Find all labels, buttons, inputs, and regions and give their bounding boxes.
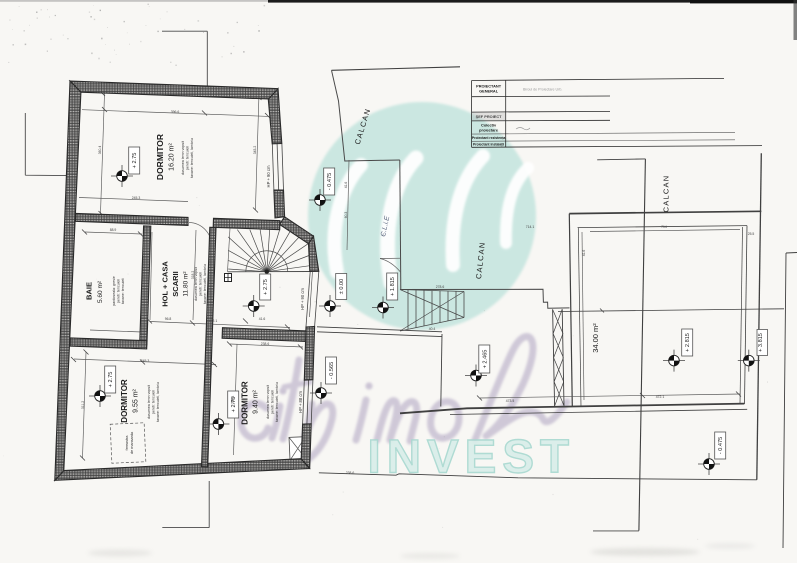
svg-text:396.6: 396.6 bbox=[171, 110, 180, 114]
svg-text:pereti: tencuieli: pereti: tencuieli bbox=[186, 146, 190, 170]
svg-text:tavane: tencuieli, lambriu: tavane: tencuieli, lambriu bbox=[275, 382, 279, 422]
svg-text:Biroul de Proiectare Urb.: Biroul de Proiectare Urb. bbox=[523, 88, 562, 92]
svg-text:SCARII: SCARII bbox=[171, 271, 180, 296]
svg-text:GENERAL: GENERAL bbox=[479, 89, 499, 94]
svg-text:311.2: 311.2 bbox=[81, 401, 85, 409]
svg-text:Proiectant rezistența: Proiectant rezistența bbox=[472, 136, 505, 140]
svg-text:9.55 m²: 9.55 m² bbox=[133, 388, 140, 412]
svg-text:278.6: 278.6 bbox=[436, 285, 445, 289]
svg-text:pereti: tencuieli: pereti: tencuieli bbox=[271, 390, 275, 414]
svg-text:dusumea lemn vopsit: dusumea lemn vopsit bbox=[181, 141, 185, 175]
svg-text:pereti: tencuieli: pereti: tencuieli bbox=[199, 272, 203, 296]
svg-text:DORMITOR: DORMITOR bbox=[241, 381, 250, 425]
svg-text:± 0.00: ± 0.00 bbox=[339, 279, 345, 295]
svg-text:Proiectant instalații: Proiectant instalații bbox=[473, 143, 504, 147]
svg-text:318.2: 318.2 bbox=[191, 271, 195, 280]
svg-text:tavane: tencuieli, lambriu: tavane: tencuieli, lambriu bbox=[156, 382, 160, 422]
svg-text:714.1: 714.1 bbox=[526, 225, 535, 229]
svg-text:11.80 m²: 11.80 m² bbox=[183, 271, 190, 297]
svg-text:DORMITOR: DORMITOR bbox=[120, 379, 129, 423]
svg-text:41.6: 41.6 bbox=[344, 182, 348, 189]
svg-text:DORMITOR: DORMITOR bbox=[155, 134, 165, 180]
svg-text:34.00 m²: 34.00 m² bbox=[591, 323, 600, 353]
svg-text:tavane: tencuieli: tavane: tencuieli bbox=[121, 278, 125, 304]
svg-text:dusumea lemn vopsit: dusumea lemn vopsit bbox=[147, 385, 151, 419]
svg-text:238.6: 238.6 bbox=[346, 471, 355, 475]
svg-text:41.6: 41.6 bbox=[259, 317, 266, 321]
svg-text:60.3: 60.3 bbox=[344, 212, 348, 219]
svg-text:473.5: 473.5 bbox=[506, 399, 515, 403]
svg-text:- 0.475: - 0.475 bbox=[718, 437, 724, 454]
svg-text:HP + 88 cm: HP + 88 cm bbox=[298, 391, 303, 413]
svg-text:HP + 90 cm: HP + 90 cm bbox=[300, 288, 305, 310]
svg-text:proiectare: proiectare bbox=[479, 128, 499, 133]
svg-text:88.9: 88.9 bbox=[110, 228, 117, 232]
svg-text:+ 2.815: + 2.815 bbox=[685, 333, 691, 352]
svg-text:25.5: 25.5 bbox=[748, 232, 755, 236]
svg-text:BAIE: BAIE bbox=[85, 282, 94, 300]
svg-text:16.20 m²: 16.20 m² bbox=[169, 143, 176, 171]
svg-text:245.3: 245.3 bbox=[132, 196, 141, 200]
svg-text:fereastra: fereastra bbox=[125, 435, 129, 451]
svg-text:pardoseala: gresie: pardoseala: gresie bbox=[112, 276, 116, 306]
svg-text:CALCAN: CALCAN bbox=[662, 175, 671, 213]
svg-text:298.8: 298.8 bbox=[231, 396, 235, 405]
svg-text:tavane: tencuieli, lambriu: tavane: tencuieli, lambriu bbox=[203, 264, 207, 304]
svg-text:714: 714 bbox=[661, 225, 667, 229]
svg-text:pereti: tencuieli: pereti: tencuieli bbox=[152, 390, 156, 414]
svg-text:360.4: 360.4 bbox=[98, 146, 102, 155]
svg-text:INVEST: INVEST bbox=[368, 431, 576, 484]
svg-text:pereti: tencuieli: pereti: tencuieli bbox=[117, 279, 121, 303]
svg-text:+ 2.75: + 2.75 bbox=[108, 372, 114, 388]
svg-text:245.3: 245.3 bbox=[141, 359, 150, 363]
svg-text:HOL + CASA: HOL + CASA bbox=[161, 261, 170, 307]
svg-text:472.1: 472.1 bbox=[656, 395, 665, 399]
svg-text:+ 1.815: + 1.815 bbox=[390, 277, 396, 296]
svg-text:9.40 m²: 9.40 m² bbox=[253, 389, 260, 413]
svg-text:5.60 m²: 5.60 m² bbox=[97, 280, 104, 303]
svg-text:+ 2.75: + 2.75 bbox=[263, 279, 269, 295]
svg-text:96.8: 96.8 bbox=[165, 317, 172, 321]
svg-text:+ 2.75: + 2.75 bbox=[132, 153, 138, 169]
svg-text:152.1: 152.1 bbox=[209, 319, 218, 323]
svg-text:dusumea lemn vopsit: dusumea lemn vopsit bbox=[266, 385, 270, 419]
svg-text:de mansarda: de mansarda bbox=[130, 431, 134, 454]
svg-text:40.4: 40.4 bbox=[429, 327, 436, 331]
svg-text:41.6: 41.6 bbox=[582, 250, 586, 257]
svg-text:HP + 90 cm: HP + 90 cm bbox=[266, 165, 271, 187]
svg-text:238.6: 238.6 bbox=[261, 342, 270, 346]
svg-text:- 0.565: - 0.565 bbox=[329, 362, 335, 379]
svg-text:+ 3.815: + 3.815 bbox=[758, 333, 764, 352]
svg-text:343.2: 343.2 bbox=[253, 146, 257, 155]
svg-text:tavane: tencuieli, lambriu: tavane: tencuieli, lambriu bbox=[190, 138, 194, 178]
svg-text:+ 2.465: + 2.465 bbox=[482, 350, 488, 369]
svg-text:- 0.475: - 0.475 bbox=[327, 173, 333, 190]
